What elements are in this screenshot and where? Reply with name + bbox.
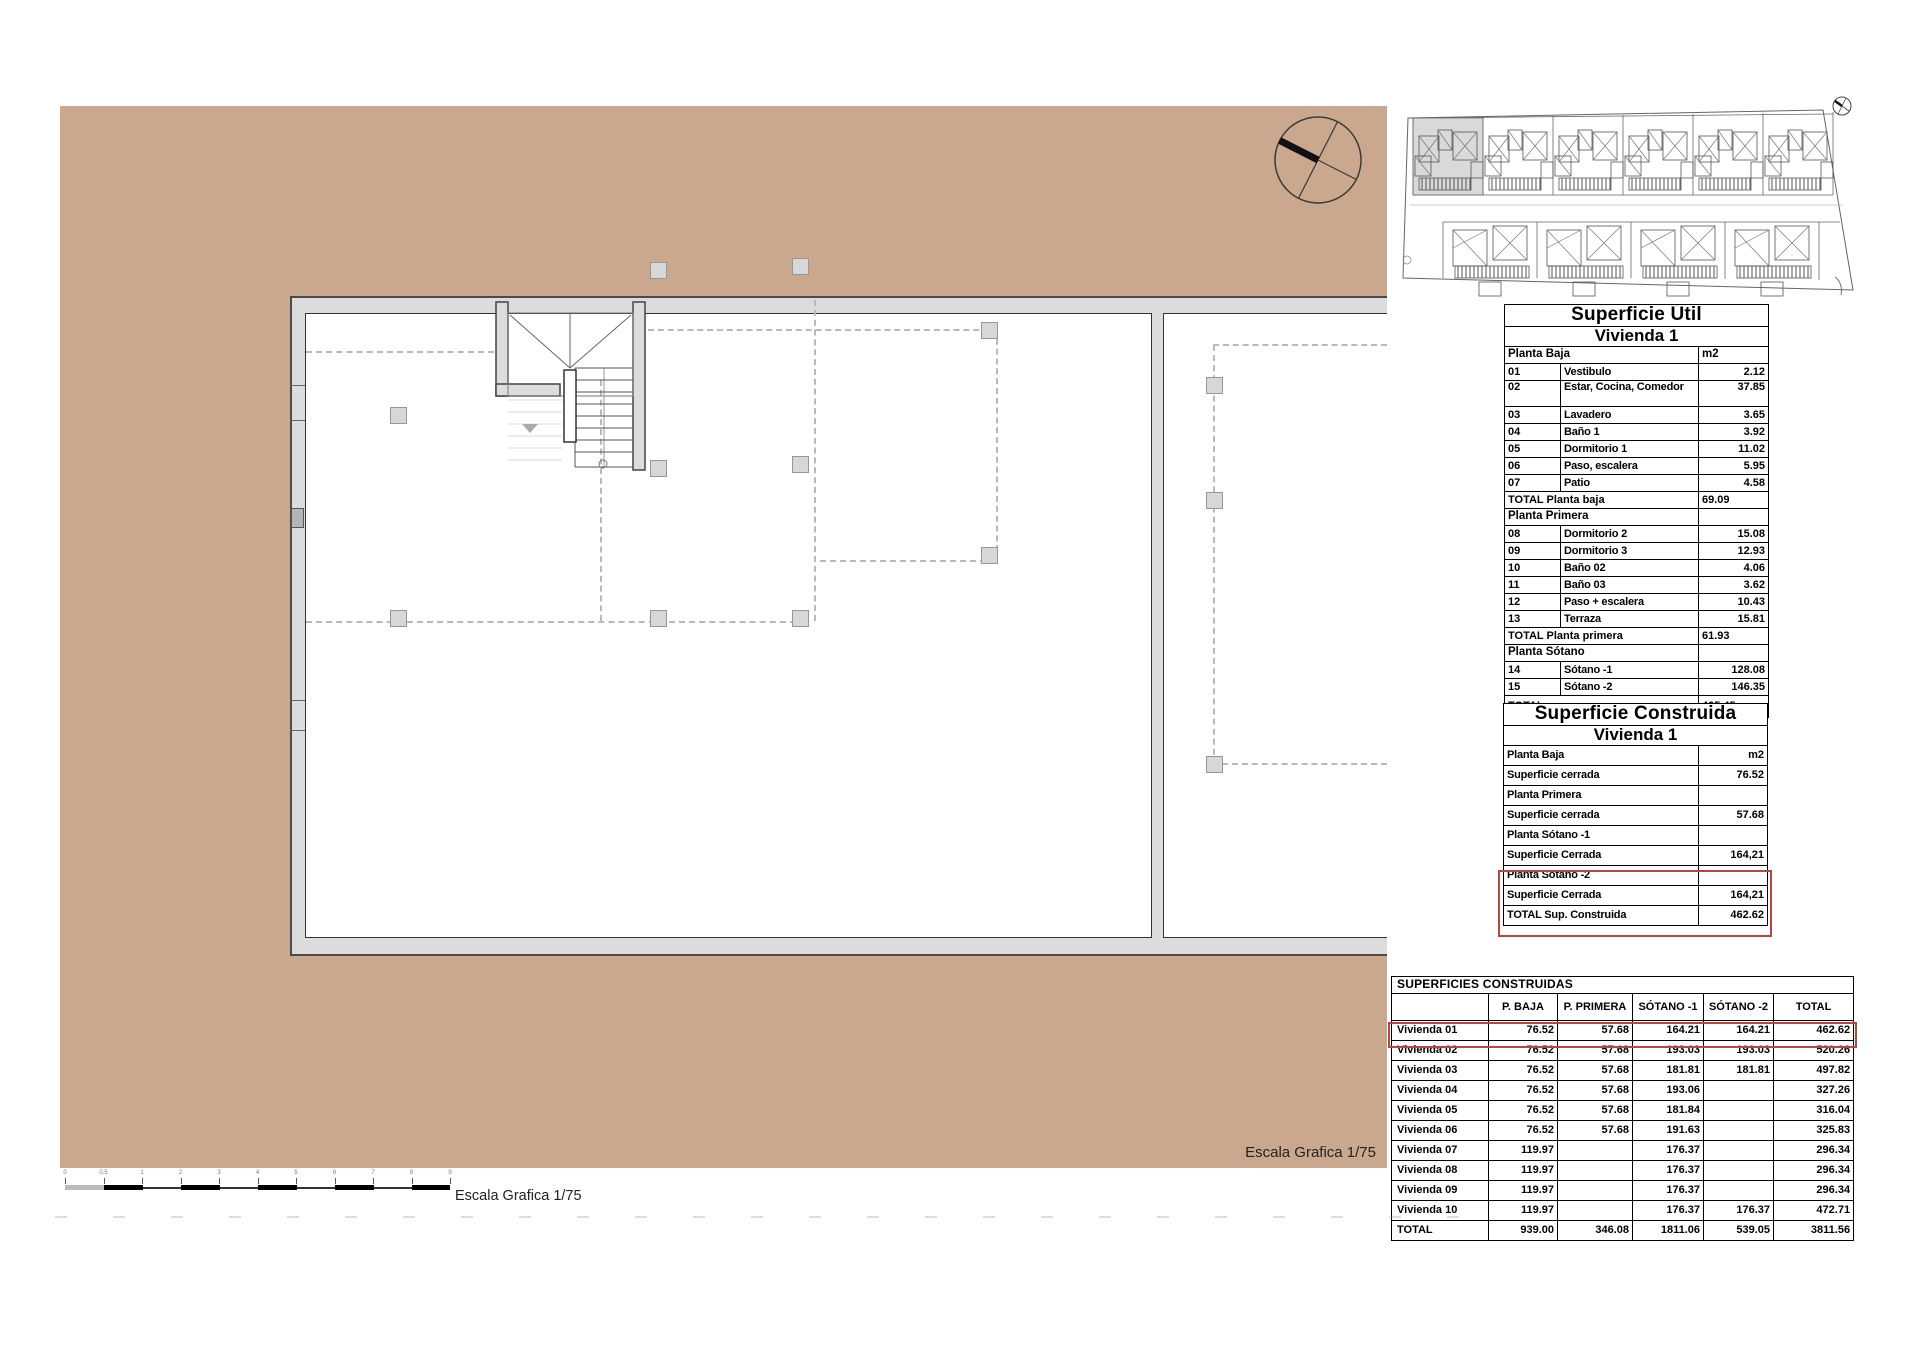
scale-bar-segment bbox=[104, 1185, 143, 1190]
superficies-construidas-table: SUPERFICIES CONSTRUIDAS P. BAJAP. PRIMER… bbox=[1391, 976, 1854, 1241]
projection-dashed-line bbox=[1222, 763, 1387, 765]
stair-railing bbox=[564, 370, 576, 442]
column-marker bbox=[1206, 756, 1223, 773]
table-row: Planta Sótano -1 bbox=[1504, 825, 1768, 845]
column-header: SÓTANO -1 bbox=[1633, 994, 1704, 1021]
projection-dashed-line bbox=[1213, 344, 1387, 346]
projection-dashed-line bbox=[996, 329, 998, 561]
section-label: Planta Sótano bbox=[1505, 644, 1699, 661]
projection-dashed-line bbox=[648, 329, 989, 331]
column-marker bbox=[650, 460, 667, 477]
column-marker bbox=[981, 322, 998, 339]
staircase bbox=[492, 294, 648, 474]
projection-dashed-line bbox=[306, 621, 806, 623]
wall-joint-line bbox=[290, 700, 305, 701]
table-row: 09 Dormitorio 3 12.93 bbox=[1505, 542, 1769, 559]
column-header: P. PRIMERA bbox=[1558, 994, 1633, 1021]
viviendas-rows: Vivienda 01 76.52 57.68 164.21 164.21 46… bbox=[1392, 1021, 1854, 1241]
table-row: Vivienda 04 76.52 57.68 193.06 327.26 bbox=[1392, 1081, 1854, 1101]
scale-bar-tick bbox=[219, 1178, 220, 1184]
table-row: 04 Baño 1 3.92 bbox=[1505, 423, 1769, 440]
table-subtitle: Vivienda 1 bbox=[1505, 326, 1769, 346]
projection-dashed-line bbox=[814, 300, 816, 621]
column-marker bbox=[390, 407, 407, 424]
column-header bbox=[1392, 994, 1489, 1021]
total-label: TOTAL Planta baja bbox=[1505, 491, 1699, 508]
column-marker bbox=[1206, 492, 1223, 509]
scale-bar-tick bbox=[335, 1178, 336, 1184]
column-marker bbox=[981, 547, 998, 564]
table-row: Superficie Cerrada 164,21 bbox=[1504, 845, 1768, 865]
north-compass-icon bbox=[1270, 112, 1366, 208]
table-row: Vivienda 03 76.52 57.68 181.81 181.81 49… bbox=[1392, 1061, 1854, 1081]
scale-bar-tick-label: 3 bbox=[212, 1170, 226, 1176]
table-row: 15 Sótano -2 146.35 bbox=[1505, 678, 1769, 695]
table-row: TOTAL 939.00 346.08 1811.06 539.05 3811.… bbox=[1392, 1221, 1854, 1241]
table-title: SUPERFICIES CONSTRUIDAS bbox=[1392, 977, 1854, 994]
scale-bar-tick-label: 4 bbox=[251, 1170, 265, 1176]
table-row: 14 Sótano -1 128.08 bbox=[1505, 661, 1769, 678]
table-title: Superficie Construida bbox=[1504, 704, 1768, 726]
table-row: 13 Terraza 15.81 bbox=[1505, 610, 1769, 627]
scale-bar-tick bbox=[450, 1178, 451, 1184]
projection-dashed-line bbox=[820, 560, 996, 562]
scale-bar-tick-label: 0 bbox=[58, 1170, 72, 1176]
scale-bar-tick-label: 8 bbox=[405, 1170, 419, 1176]
faded-footnote-row bbox=[55, 1216, 1495, 1218]
total-label: TOTAL Planta primera bbox=[1505, 627, 1699, 644]
scale-bar-tick bbox=[65, 1178, 66, 1184]
section-label: Planta Primera bbox=[1505, 508, 1699, 525]
column-marker bbox=[1206, 377, 1223, 394]
scale-bar-tick bbox=[412, 1178, 413, 1184]
table-row: Planta Baja m2 bbox=[1504, 745, 1768, 765]
scale-label-bar: Escala Grafica 1/75 bbox=[455, 1188, 582, 1204]
column-header: P. BAJA bbox=[1489, 994, 1558, 1021]
architectural-plan-sheet: Escala Grafica 1/75 bbox=[0, 0, 1920, 1357]
scale-bar-segment bbox=[412, 1185, 450, 1190]
scale-bar-tick-label: 0.5 bbox=[97, 1170, 111, 1176]
total-value: 61.93 bbox=[1699, 627, 1769, 644]
column-marker bbox=[792, 456, 809, 473]
table-row: Planta Primera bbox=[1504, 785, 1768, 805]
table-row: 02 Estar, Cocina, Comedor 37.85 bbox=[1505, 380, 1769, 406]
scale-bar-tick-label: 1 bbox=[135, 1170, 149, 1176]
superficie-util-table: Superficie Útil Vivienda 1 Planta Baja m… bbox=[1504, 304, 1769, 718]
floor-plan-room-vivienda bbox=[305, 313, 1152, 938]
table-row: 12 Paso + escalera 10.43 bbox=[1505, 593, 1769, 610]
column-header-row: P. BAJAP. PRIMERASÓTANO -1SÓTANO -2TOTAL bbox=[1392, 994, 1854, 1021]
scale-label-plan: Escala Grafica 1/75 bbox=[1140, 1144, 1376, 1161]
scale-bar-tick-label: 7 bbox=[366, 1170, 380, 1176]
column-marker bbox=[792, 610, 809, 627]
wall-opening bbox=[291, 508, 304, 528]
planta-baja-rows: 01 Vestibulo 2.12 02 Estar, Cocina, Come… bbox=[1505, 363, 1769, 491]
scale-bar-segment bbox=[335, 1185, 374, 1190]
scale-bar-tick-label: 9 bbox=[443, 1170, 457, 1176]
scale-bar-tick bbox=[296, 1178, 297, 1184]
table-row: 03 Lavadero 3.65 bbox=[1505, 406, 1769, 423]
scale-bar-segment bbox=[65, 1185, 104, 1190]
table-row: Vivienda 09 119.97 176.37 296.34 bbox=[1392, 1181, 1854, 1201]
wall-joint-line bbox=[290, 730, 305, 731]
scale-bar-tick-label: 2 bbox=[174, 1170, 188, 1176]
planta-primera-rows: 08 Dormitorio 2 15.08 09 Dormitorio 3 12… bbox=[1505, 525, 1769, 627]
scale-bar-tick bbox=[181, 1178, 182, 1184]
floor-plan-room-adjacent bbox=[1163, 313, 1387, 938]
table-row: Vivienda 08 119.97 176.37 296.34 bbox=[1392, 1161, 1854, 1181]
wall-joint-line bbox=[290, 420, 305, 421]
column-marker bbox=[792, 258, 809, 275]
scale-bar-tick bbox=[258, 1178, 259, 1184]
scale-bar-tick bbox=[104, 1178, 105, 1184]
planta-sotano-rows: 14 Sótano -1 128.08 15 Sótano -2 146.35 bbox=[1505, 661, 1769, 695]
scale-bar-segment bbox=[181, 1185, 220, 1190]
table-row: Vivienda 07 119.97 176.37 296.34 bbox=[1392, 1141, 1854, 1161]
scale-bar-tick bbox=[373, 1178, 374, 1184]
table-row: Superficie cerrada 57.68 bbox=[1504, 805, 1768, 825]
column-marker bbox=[390, 610, 407, 627]
scale-bar-segment bbox=[258, 1185, 297, 1190]
highlight-box-vivienda01 bbox=[1388, 1022, 1857, 1048]
scale-bar-tick-label: 6 bbox=[328, 1170, 342, 1176]
table-row: Vivienda 06 76.52 57.68 191.63 325.83 bbox=[1392, 1121, 1854, 1141]
scale-bar-tick bbox=[142, 1178, 143, 1184]
column-marker bbox=[650, 610, 667, 627]
scale-bar-tick-label: 5 bbox=[289, 1170, 303, 1176]
table-row: 08 Dormitorio 2 15.08 bbox=[1505, 525, 1769, 542]
table-row: 05 Dormitorio 1 11.02 bbox=[1505, 440, 1769, 457]
table-row: 06 Paso, escalera 5.95 bbox=[1505, 457, 1769, 474]
projection-dashed-line bbox=[306, 351, 494, 353]
table-subtitle: Vivienda 1 bbox=[1504, 725, 1768, 745]
table-row: Superficie cerrada 76.52 bbox=[1504, 765, 1768, 785]
table-row: 01 Vestibulo 2.12 bbox=[1505, 363, 1769, 380]
column-header: SÓTANO -2 bbox=[1704, 994, 1774, 1021]
table-row: 07 Patio 4.58 bbox=[1505, 474, 1769, 491]
projection-dashed-line bbox=[1213, 345, 1215, 765]
wall-joint-line bbox=[290, 385, 305, 386]
highlight-box-sotano2 bbox=[1498, 870, 1772, 937]
table-title: Superficie Útil bbox=[1505, 305, 1769, 327]
table-row: Vivienda 05 76.52 57.68 181.84 316.04 bbox=[1392, 1101, 1854, 1121]
column-marker bbox=[650, 262, 667, 279]
unit-header: m2 bbox=[1699, 346, 1769, 363]
total-value: 69.09 bbox=[1699, 491, 1769, 508]
section-label: Planta Baja bbox=[1505, 346, 1699, 363]
table-row: 10 Baño 02 4.06 bbox=[1505, 559, 1769, 576]
stair-direction-arrow-icon bbox=[522, 424, 538, 433]
site-plan-inset bbox=[1395, 82, 1865, 297]
table-row: 11 Baño 03 3.62 bbox=[1505, 576, 1769, 593]
column-header: TOTAL bbox=[1774, 994, 1854, 1021]
